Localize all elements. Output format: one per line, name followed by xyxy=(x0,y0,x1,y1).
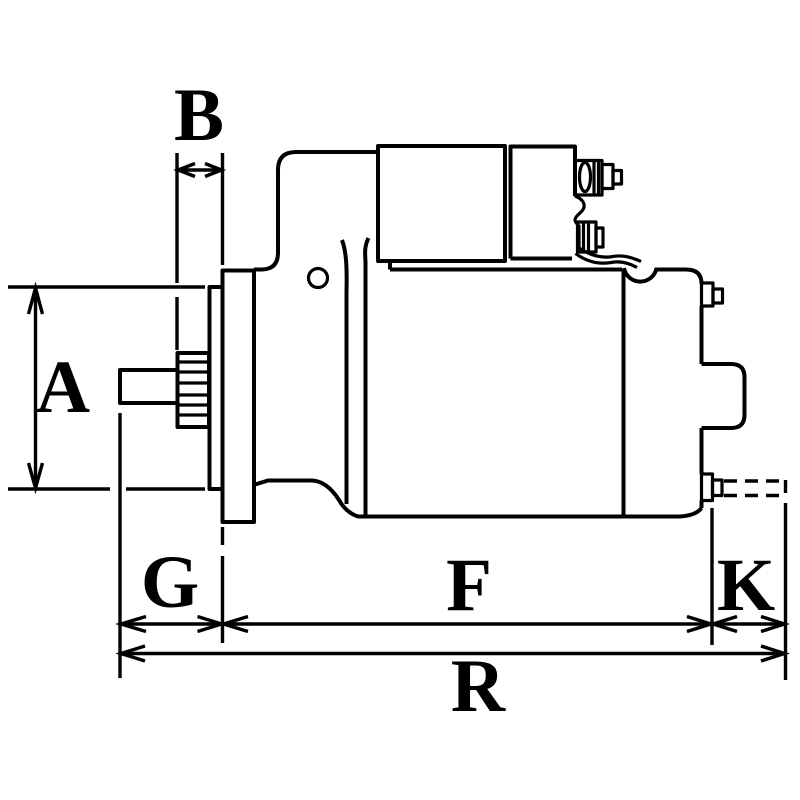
solenoid-body xyxy=(378,146,505,261)
motor-terminal-lines xyxy=(584,222,589,252)
strap-clamp xyxy=(624,268,657,282)
upper-bolt-stud xyxy=(713,289,723,303)
starter-motor-drawing xyxy=(120,146,786,522)
terminal-nut xyxy=(602,165,613,189)
shaft-outline xyxy=(120,370,177,403)
terminal-lens xyxy=(580,163,591,192)
dimension-label-b: B xyxy=(174,74,224,157)
dimension-label-g: G xyxy=(141,541,199,624)
diagram-canvas: B A G F K R xyxy=(0,0,800,800)
solenoid-cap xyxy=(511,147,576,259)
body-right-edge xyxy=(655,270,702,509)
rear-bolt-nut xyxy=(702,474,713,501)
yoke-front-edge xyxy=(365,238,368,516)
dimension-label-k: K xyxy=(717,544,775,627)
terminal-stud xyxy=(613,171,622,185)
bottom-outline xyxy=(254,481,702,517)
motor-terminal-stud xyxy=(596,228,603,247)
drive-housing-outline xyxy=(254,152,378,270)
battery-terminal xyxy=(575,161,622,196)
upper-bolt-nut xyxy=(702,283,714,306)
starter-motor-diagram: B A G F K R xyxy=(0,0,800,800)
housing-joint-line xyxy=(342,240,347,504)
terminal-insulator-lines xyxy=(594,161,599,196)
pinion-teeth xyxy=(177,362,209,415)
dimension-label-f: F xyxy=(446,544,492,627)
rear-boss xyxy=(702,364,745,428)
mounting-flange xyxy=(223,271,255,523)
motor-terminal xyxy=(576,222,657,282)
housing-hole xyxy=(309,269,328,288)
dimension-label-a: A xyxy=(36,346,90,429)
dimension-label-r: R xyxy=(451,645,506,728)
rear-bolt-stud xyxy=(713,480,723,496)
hidden-stud-lines xyxy=(724,480,786,496)
